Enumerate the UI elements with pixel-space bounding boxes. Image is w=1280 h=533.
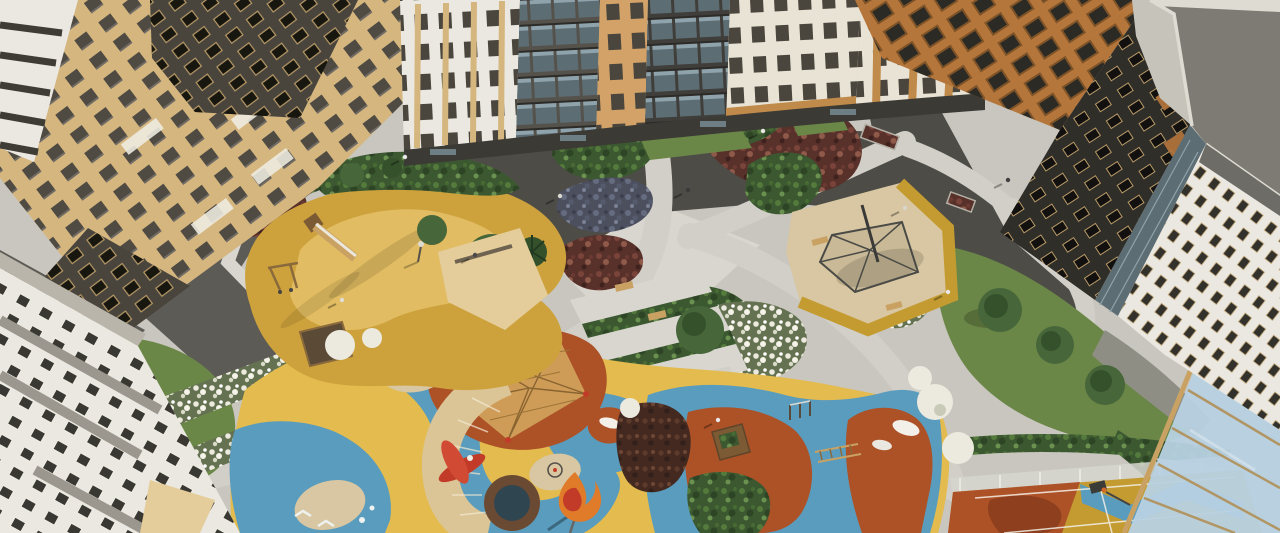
tree-top-1	[340, 163, 364, 187]
courtyard-aerial-render	[0, 0, 1280, 533]
dot-1	[359, 517, 365, 523]
dot-2	[370, 506, 375, 511]
scene-svg	[0, 0, 1280, 533]
carousel-center	[553, 468, 557, 472]
tree-small-1	[417, 215, 447, 245]
plane-cockpit	[467, 455, 473, 461]
pool-water	[494, 485, 530, 521]
blossom-tree-2	[362, 328, 382, 348]
hoop-ring	[1102, 488, 1107, 493]
blossom-cap	[620, 398, 640, 418]
rust-island	[846, 408, 933, 533]
blossom-tree-1	[325, 330, 355, 360]
